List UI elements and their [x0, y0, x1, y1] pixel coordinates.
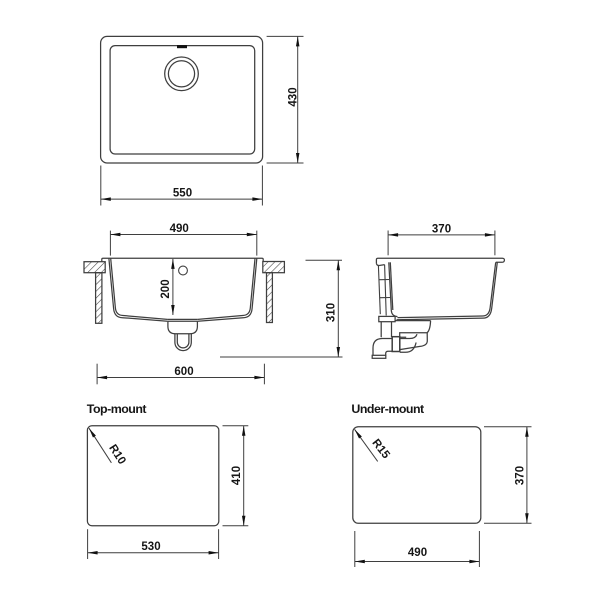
svg-text:600: 600: [174, 366, 193, 378]
svg-text:370: 370: [514, 466, 526, 485]
svg-text:490: 490: [408, 547, 427, 559]
svg-text:370: 370: [432, 223, 451, 235]
svg-text:310: 310: [325, 303, 337, 322]
svg-text:530: 530: [141, 541, 160, 553]
svg-text:Top-mount: Top-mount: [87, 402, 147, 416]
svg-text:550: 550: [173, 187, 192, 199]
svg-text:490: 490: [170, 223, 189, 235]
svg-text:430: 430: [287, 87, 299, 106]
svg-text:200: 200: [160, 279, 172, 298]
svg-text:R10: R10: [106, 443, 128, 467]
svg-text:410: 410: [231, 466, 243, 485]
svg-text:R15: R15: [369, 437, 392, 461]
svg-text:Under-mount: Under-mount: [351, 402, 424, 416]
